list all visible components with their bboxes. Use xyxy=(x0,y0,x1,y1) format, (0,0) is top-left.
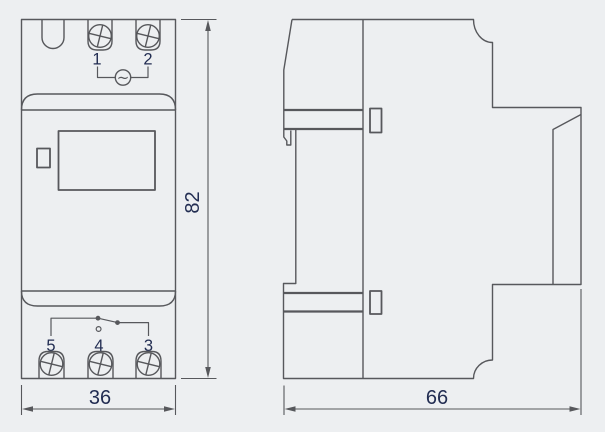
drawing-canvas: 1 2 ~ 5 4 3 xyxy=(0,0,605,432)
arrow-right-icon xyxy=(570,406,581,412)
dim-width-label: 36 xyxy=(89,387,111,409)
latch-top xyxy=(370,109,382,133)
front-outline xyxy=(22,20,176,379)
latch-bottom xyxy=(370,291,382,314)
bezel-bottom xyxy=(22,291,176,306)
screw-terminal-icon xyxy=(86,22,113,49)
arrow-left-icon xyxy=(22,406,33,412)
contact-dot xyxy=(96,316,101,321)
side-front-edge xyxy=(284,20,292,130)
contact-dot xyxy=(115,320,120,325)
pivot-contact xyxy=(96,327,101,332)
dimension-height: 82 xyxy=(181,20,217,379)
front-view: 1 2 ~ 5 4 3 xyxy=(22,20,176,379)
side-outline xyxy=(284,20,582,379)
dim-depth-label: 66 xyxy=(426,387,448,409)
terminal-label-1: 1 xyxy=(92,51,101,69)
changeover-switch-symbol xyxy=(51,316,149,336)
wire xyxy=(118,323,149,336)
dimension-width: 36 xyxy=(22,385,176,415)
technical-drawing: 1 2 ~ 5 4 3 xyxy=(0,0,605,432)
side-button xyxy=(37,149,50,168)
din-rail-recess xyxy=(553,115,581,285)
switch-blade xyxy=(98,318,118,322)
screw-terminal-icon xyxy=(134,22,161,49)
clip-hook xyxy=(284,129,291,145)
lcd-display xyxy=(59,131,156,190)
ac-source-symbol: ~ xyxy=(98,67,149,87)
arrow-up-icon xyxy=(205,20,211,31)
bezel-top xyxy=(22,94,176,110)
side-view xyxy=(284,20,582,379)
terminal-label-2: 2 xyxy=(143,51,152,69)
arrow-down-icon xyxy=(205,367,211,378)
arrow-left-icon xyxy=(285,406,296,412)
mounting-slot xyxy=(42,20,64,49)
dim-height-label: 82 xyxy=(182,191,204,213)
arrow-right-icon xyxy=(164,406,175,412)
ac-tilde: ~ xyxy=(117,69,130,87)
dimension-depth: 66 xyxy=(284,289,581,415)
wire xyxy=(51,318,98,336)
